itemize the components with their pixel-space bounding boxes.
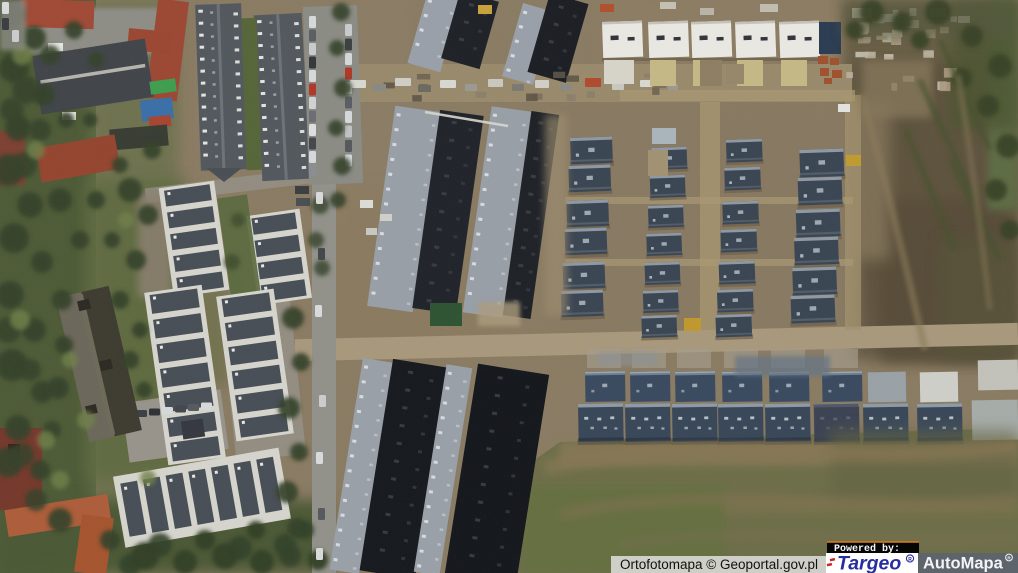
svg-text:Ortofotomapa © Geoportal.gov.p: Ortofotomapa © Geoportal.gov.pl: [620, 557, 818, 572]
svg-text:R: R: [908, 557, 912, 563]
svg-text:AutoMapa: AutoMapa: [923, 555, 1004, 573]
svg-text:Targeo: Targeo: [837, 553, 901, 573]
